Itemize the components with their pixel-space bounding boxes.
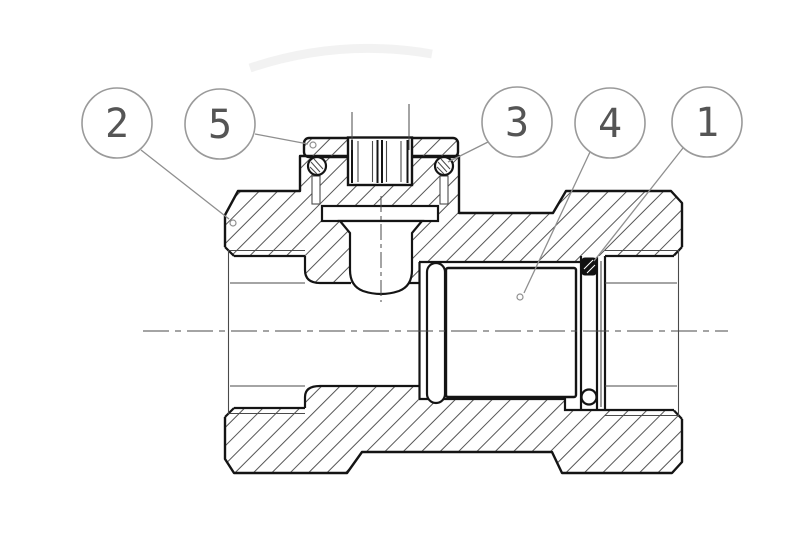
valve-section-drawing: 25341 bbox=[0, 0, 800, 545]
leader-dot bbox=[310, 142, 316, 148]
callout-balloon-3: 3 bbox=[448, 87, 552, 162]
gland-skirt-left bbox=[312, 176, 320, 204]
bottom-seal-ring bbox=[582, 390, 597, 405]
balloon-number: 3 bbox=[505, 100, 529, 146]
balloon-number: 1 bbox=[695, 100, 719, 146]
balloon-number: 4 bbox=[598, 101, 622, 147]
ball-spool bbox=[446, 268, 576, 397]
ball-spool-assembly bbox=[427, 263, 576, 403]
leader-line bbox=[255, 134, 308, 144]
leader-dot bbox=[517, 294, 523, 300]
leader-line bbox=[141, 150, 229, 219]
callout-balloon-5: 5 bbox=[185, 89, 316, 159]
bonnet-flange bbox=[322, 206, 438, 221]
balloon-number: 2 bbox=[105, 101, 129, 147]
drawing-page: 25341 bbox=[0, 0, 800, 545]
balloon-number: 5 bbox=[208, 102, 232, 148]
gland-skirt-right bbox=[440, 176, 448, 204]
stem-recess bbox=[348, 138, 412, 186]
ghost-smudge bbox=[250, 48, 432, 68]
stem-o-ring-right bbox=[435, 157, 453, 175]
stem-o-ring-left bbox=[308, 157, 326, 175]
leader-dot bbox=[230, 220, 236, 226]
seat-ring-band bbox=[427, 263, 445, 403]
